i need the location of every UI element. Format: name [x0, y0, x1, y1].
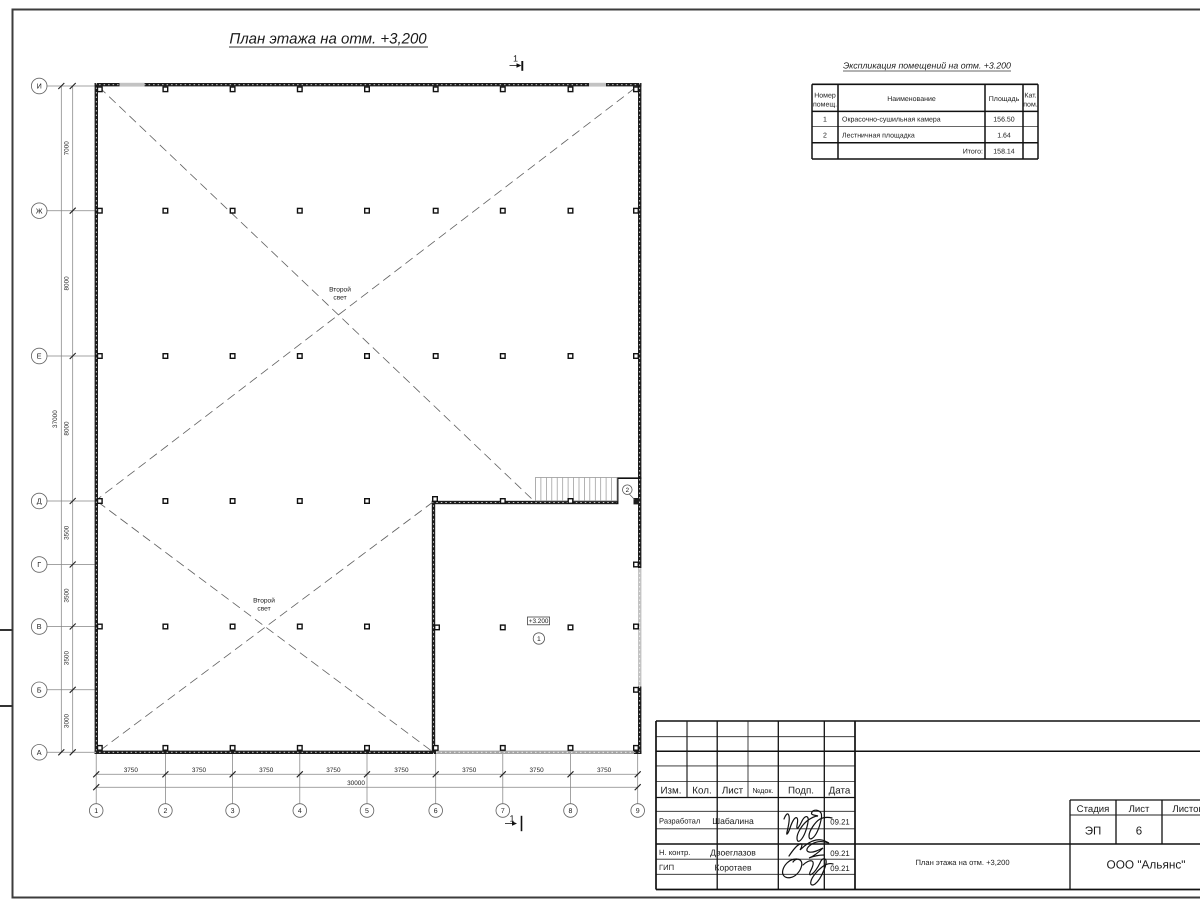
svg-text:8000: 8000 [64, 276, 71, 291]
svg-text:свет: свет [333, 295, 346, 302]
svg-text:3750: 3750 [192, 767, 207, 774]
svg-text:09.21: 09.21 [830, 864, 850, 873]
svg-text:37000: 37000 [52, 410, 59, 428]
svg-text:Подп.: Подп. [788, 786, 814, 797]
svg-text:30000: 30000 [347, 780, 365, 787]
svg-text:ЭП: ЭП [1085, 826, 1102, 838]
svg-text:План этажа на отм. +3,200: План этажа на отм. +3,200 [915, 858, 1009, 867]
svg-text:ООО "Альянс": ООО "Альянс" [1107, 858, 1186, 872]
svg-text:3500: 3500 [64, 588, 71, 603]
svg-text:2: 2 [823, 132, 827, 139]
svg-text:помещ.: помещ. [813, 102, 837, 109]
svg-text:Е: Е [37, 352, 42, 361]
svg-text:1.64: 1.64 [997, 132, 1011, 139]
svg-text:Наименование: Наименование [887, 96, 936, 103]
svg-text:Д: Д [37, 497, 42, 506]
svg-text:09.21: 09.21 [830, 818, 850, 827]
svg-text:3750: 3750 [462, 767, 477, 774]
svg-text:3750: 3750 [394, 767, 409, 774]
svg-text:Шабалина: Шабалина [712, 816, 754, 826]
svg-text:Окрасочно-сушильная камера: Окрасочно-сушильная камера [842, 117, 941, 124]
svg-text:1: 1 [94, 808, 98, 815]
svg-text:3750: 3750 [326, 767, 341, 774]
svg-text:7000: 7000 [64, 141, 71, 156]
svg-text:План этажа на отм. +3,200: План этажа на отм. +3,200 [229, 31, 427, 48]
svg-text:3500: 3500 [64, 525, 71, 540]
svg-text:А: А [37, 748, 42, 757]
svg-text:Разработал: Разработал [659, 817, 700, 826]
svg-text:7: 7 [501, 808, 505, 815]
svg-text:6: 6 [434, 808, 438, 815]
svg-text:3750: 3750 [597, 767, 612, 774]
svg-text:№док.: №док. [752, 786, 773, 795]
svg-text:свет: свет [257, 606, 270, 613]
svg-text:Кол.: Кол. [692, 786, 711, 797]
svg-text:6: 6 [1136, 826, 1142, 838]
svg-text:4: 4 [298, 808, 302, 815]
svg-text:Второй: Второй [329, 287, 351, 294]
svg-text:156.50: 156.50 [993, 117, 1015, 124]
svg-text:Площадь: Площадь [989, 96, 1020, 103]
svg-text:Ж: Ж [36, 206, 43, 215]
svg-text:Второй: Второй [253, 598, 275, 605]
svg-text:Лестничная площадка: Лестничная площадка [842, 132, 915, 139]
svg-text:5: 5 [365, 808, 369, 815]
svg-text:Листов: Листов [1172, 804, 1200, 815]
svg-text:Кат.: Кат. [1024, 93, 1036, 100]
svg-text:Итого:: Итого: [963, 149, 983, 156]
svg-text:2: 2 [626, 487, 630, 494]
svg-text:3750: 3750 [529, 767, 544, 774]
svg-text:Н. контр.: Н. контр. [659, 848, 690, 857]
svg-text:Изм.: Изм. [661, 786, 682, 797]
svg-text:3750: 3750 [124, 767, 139, 774]
svg-text:2: 2 [163, 808, 167, 815]
svg-text:1: 1 [537, 636, 541, 643]
svg-text:1: 1 [823, 117, 827, 124]
svg-text:Коротаев: Коротаев [714, 863, 752, 873]
svg-text:пом.: пом. [1023, 102, 1037, 109]
svg-text:8: 8 [569, 808, 573, 815]
svg-text:Экспликация помещений на отм.: Экспликация помещений на отм. +3.200 [843, 61, 1011, 71]
svg-text:3500: 3500 [64, 651, 71, 666]
svg-text:158.14: 158.14 [993, 149, 1015, 156]
svg-text:Стадия: Стадия [1077, 804, 1110, 815]
svg-text:3750: 3750 [259, 767, 274, 774]
svg-text:Б: Б [37, 685, 42, 694]
svg-text:Г: Г [37, 560, 41, 569]
svg-text:Лист: Лист [722, 786, 744, 797]
svg-text:+3.200: +3.200 [529, 618, 549, 625]
svg-text:3000: 3000 [64, 713, 71, 728]
svg-text:Лист: Лист [1129, 804, 1150, 815]
svg-text:3: 3 [231, 808, 235, 815]
svg-text:И: И [37, 82, 42, 91]
svg-text:Дата: Дата [829, 786, 851, 797]
svg-text:Двоеглазов: Двоеглазов [710, 848, 756, 858]
svg-text:9: 9 [636, 808, 640, 815]
svg-text:ГИП: ГИП [659, 863, 674, 872]
svg-text:В: В [37, 622, 42, 631]
svg-text:Номер: Номер [814, 93, 836, 100]
svg-text:1: 1 [513, 54, 518, 64]
svg-text:8000: 8000 [64, 421, 71, 436]
svg-text:09.21: 09.21 [830, 849, 850, 858]
